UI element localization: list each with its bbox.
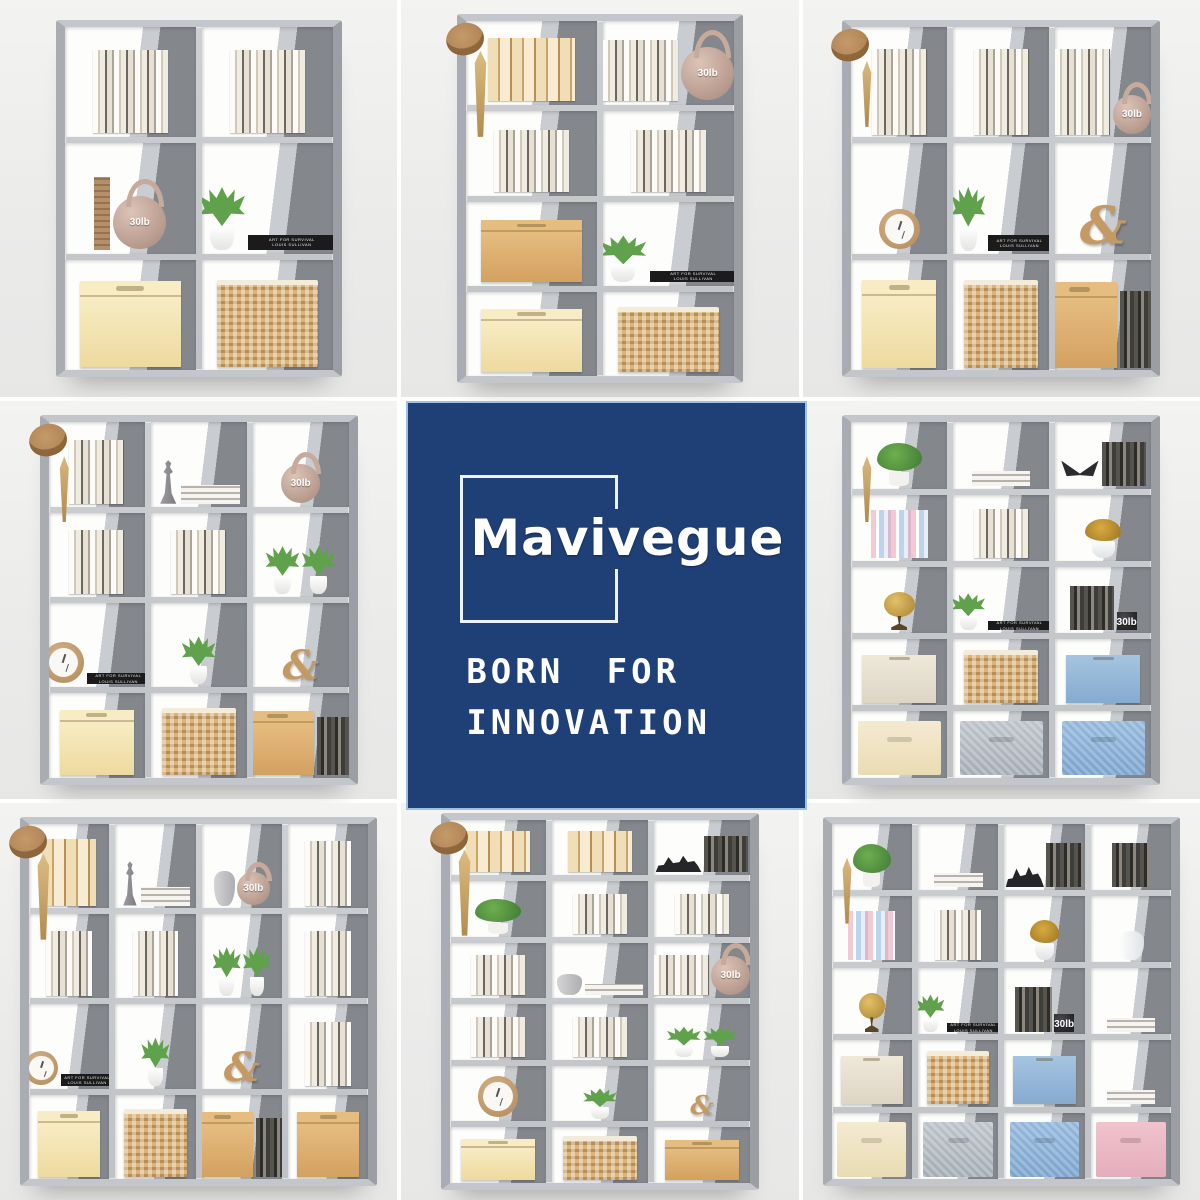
16-cube-organizer-photo: 30lbART FOR SURVIVALLOUIS SULLIVAN& <box>20 817 378 1187</box>
item-basket <box>563 1136 637 1180</box>
item-kettlebell: 30lb <box>711 956 750 995</box>
shelf-cube <box>953 639 1049 705</box>
shelf-cube: ART FOR SURVIVALLOUIS SULLIVAN <box>953 567 1049 633</box>
shelf-cube <box>552 1127 648 1183</box>
item-amp: & <box>283 648 319 684</box>
shelf-cube <box>115 1004 195 1088</box>
item-basket <box>927 1051 989 1105</box>
item-plant-leafy <box>875 443 924 486</box>
kettlebell-weight-label: 30lb <box>1122 109 1142 120</box>
15-cube-organizer-photo: ART FOR SURVIVALLOUIS SULLIVAN30lb <box>842 415 1160 785</box>
shelf-cube <box>918 1040 998 1106</box>
item-stack <box>1107 1090 1156 1105</box>
item-plant <box>953 187 985 251</box>
item-globe <box>879 592 920 630</box>
shelf-cube <box>832 968 912 1034</box>
item-stack <box>1107 1018 1156 1033</box>
shelf-cube <box>29 1095 109 1179</box>
shelf-cube: ART FOR SURVIVALLOUIS SULLIVAN <box>603 202 734 286</box>
item-plant <box>603 235 646 282</box>
item-books <box>471 1017 526 1057</box>
item-box-cream <box>461 1139 535 1180</box>
shelf-cube <box>953 27 1049 138</box>
kettlebell-weight-label: 30lb <box>1054 1019 1074 1030</box>
8-cube-organizer-photo: 30lbART FOR SURVIVALLOUIS SULLIVAN <box>457 14 743 384</box>
item-stack-black: ART FOR SURVIVALLOUIS SULLIVAN <box>650 271 734 282</box>
item-box-cream <box>862 280 936 367</box>
book-spine-text: LOUIS SULLIVAN <box>1000 243 1039 249</box>
item-dino <box>1006 866 1044 888</box>
brand-square: Mavivegue BORN FOR INNOVATION <box>406 401 806 809</box>
item-plant <box>266 546 300 594</box>
item-plant <box>243 947 271 996</box>
item-books-dark <box>256 1118 283 1176</box>
shelf-cube <box>466 111 597 195</box>
shelf-cube <box>654 1004 750 1060</box>
shelf-cube: & <box>1055 143 1151 254</box>
item-basket <box>618 307 719 372</box>
shelf-cube <box>288 1095 368 1179</box>
6-cube-organizer-photo: 30lbART FOR SURVIVALLOUIS SULLIVAN <box>56 20 342 378</box>
item-books-dark <box>1120 291 1152 368</box>
item-plant <box>703 1027 737 1057</box>
shelf-cube <box>1004 1113 1084 1179</box>
item-box-cream <box>38 1111 100 1177</box>
item-basket <box>124 1109 186 1177</box>
item-books <box>631 130 706 192</box>
shelf-cube <box>832 1113 912 1179</box>
item-books <box>654 955 709 995</box>
item-amp: & <box>690 1095 713 1118</box>
item-books-dark <box>1070 586 1114 630</box>
item-plant <box>583 1088 617 1118</box>
book-spine-text: LOUIS SULLIVAN <box>954 1028 993 1033</box>
shelf-cube <box>151 422 247 506</box>
shelf-cube <box>202 27 333 138</box>
shelf-cube <box>1055 422 1151 488</box>
shelf-cube <box>65 260 196 371</box>
item-books <box>974 49 1029 134</box>
item-clock <box>29 1051 58 1085</box>
item-box-tan <box>481 220 582 282</box>
9-cube-organizer-photo: 30lbART FOR SURVIVALLOUIS SULLIVAN& <box>842 20 1160 378</box>
shelf-cube <box>1091 968 1171 1034</box>
item-drawer-grey <box>960 721 1043 775</box>
item-stack-black: ART FOR SURVIVALLOUIS SULLIVAN <box>988 235 1050 251</box>
shelf-cube <box>654 881 750 937</box>
item-books <box>494 130 569 192</box>
item-basket <box>162 708 236 775</box>
item-stack-black: ART FOR SURVIVALLOUIS SULLIVAN <box>248 235 332 250</box>
shelf-cube: 30lb <box>603 21 734 105</box>
item-folders <box>42 839 95 905</box>
shelf-cube <box>953 711 1049 777</box>
item-kettlebell: 30lb <box>681 47 734 100</box>
item-dino <box>656 855 702 873</box>
item-drawer-pink <box>1096 1122 1166 1177</box>
item-kettlebell: 30lb <box>1113 95 1152 134</box>
shelf-cube <box>288 1004 368 1088</box>
item-bin-beige <box>841 1056 903 1105</box>
item-stack <box>141 887 190 906</box>
item-clock <box>478 1076 519 1117</box>
item-bin-blue <box>1013 1056 1075 1105</box>
shelf-cube <box>288 914 368 998</box>
item-flowers-yellow <box>1028 920 1062 960</box>
shelf-cube <box>202 260 333 371</box>
shelf-cube <box>151 513 247 597</box>
item-folders <box>568 831 632 872</box>
item-books <box>305 1022 351 1087</box>
item-plant <box>202 187 245 250</box>
photo-12-cube-organizer: 30lbART FOR SURVIVALLOUIS SULLIVAN& <box>0 401 397 798</box>
shelf-cube <box>65 27 196 138</box>
shelf-cube: ART FOR SURVIVALLOUIS SULLIVAN <box>953 143 1049 254</box>
shelf-cube: 30lb <box>1055 567 1151 633</box>
shelf-cube <box>1055 711 1151 777</box>
item-books <box>305 841 351 906</box>
kettlebell-weight-label: 30lb <box>1117 617 1137 628</box>
kettlebell-weight-label: 30lb <box>698 68 718 79</box>
item-stack <box>585 984 643 996</box>
shelf-cube <box>1091 896 1171 962</box>
item-butterfly <box>1060 461 1099 486</box>
item-globe <box>855 993 889 1032</box>
shelf-cube <box>851 260 947 371</box>
item-kettlebell: 30lb <box>237 872 270 905</box>
kettlebell-weight-label: 30lb <box>130 217 150 228</box>
item-drawer-cream <box>858 721 941 775</box>
item-books-pastel <box>871 510 928 558</box>
item-books <box>230 50 305 133</box>
item-stack <box>934 873 983 888</box>
shelf-cube <box>1004 824 1084 890</box>
item-plant <box>182 636 216 684</box>
item-drawer-blue <box>1010 1122 1080 1177</box>
item-folders <box>488 38 575 101</box>
shelf-cube <box>49 693 145 777</box>
item-bin-blue <box>1066 655 1140 703</box>
book-spine-text: LOUIS SULLIVAN <box>99 679 138 685</box>
shelf-cube <box>151 693 247 777</box>
shelf-cube <box>1091 1113 1171 1179</box>
shelf-cube <box>832 896 912 962</box>
shelf-cube: 30lb <box>202 824 282 908</box>
item-books-dark <box>1112 843 1149 888</box>
shelf-cube <box>953 422 1049 488</box>
shelf-cube <box>1055 639 1151 705</box>
tagline-line-1: BORN FOR <box>466 647 711 698</box>
shelf-cube <box>115 1095 195 1179</box>
item-plant <box>141 1037 169 1086</box>
item-vase <box>557 974 582 996</box>
item-folders <box>466 831 530 872</box>
shelf-cube <box>466 292 597 376</box>
item-plant-leafy <box>851 844 892 888</box>
book-spine-text: LOUIS SULLIVAN <box>272 242 311 248</box>
shelf-cube: ART FOR SURVIVALLOUIS SULLIVAN <box>49 603 145 687</box>
shelf-cube <box>288 824 368 908</box>
shelf-cube: ART FOR SURVIVALLOUIS SULLIVAN <box>202 143 333 254</box>
item-books <box>171 530 226 594</box>
item-plant <box>667 1027 701 1057</box>
item-amp: & <box>1080 204 1127 251</box>
item-stack <box>181 485 239 504</box>
shelf-cube <box>151 603 247 687</box>
item-books-pastel <box>848 911 895 960</box>
item-books <box>133 931 179 996</box>
shelf-cube <box>552 943 648 999</box>
shelf-cube <box>202 1095 282 1179</box>
item-box-tan <box>297 1112 359 1177</box>
item-books-dark <box>1046 843 1083 888</box>
item-books <box>305 931 351 996</box>
kettlebell-weight-label: 30lb <box>291 478 311 489</box>
item-stack <box>972 471 1030 485</box>
shelf-cube <box>552 1066 648 1122</box>
shelf-cube <box>253 693 349 777</box>
item-plant <box>918 994 945 1032</box>
item-books <box>675 894 730 934</box>
item-basket <box>964 650 1038 703</box>
item-chess <box>121 861 139 905</box>
shelf-cube <box>654 1127 750 1183</box>
item-bin-beige <box>862 655 936 703</box>
shelf-cube <box>49 513 145 597</box>
shelf-cube <box>1004 896 1084 962</box>
shelf-cube <box>1055 260 1151 371</box>
shelf-cube: 30lb <box>1004 968 1084 1034</box>
item-plant <box>302 546 336 594</box>
shelf-cube <box>552 881 648 937</box>
photo-16-cube-organizer: 30lbART FOR SURVIVALLOUIS SULLIVAN& <box>0 803 397 1200</box>
shelf-cube <box>851 567 947 633</box>
shelf-cube <box>654 820 750 876</box>
tagline-line-2: INNOVATION <box>466 698 711 749</box>
book-spine-text: LOUIS SULLIVAN <box>1000 626 1039 630</box>
item-books <box>872 49 927 134</box>
item-books <box>974 509 1029 558</box>
shelf-cube <box>450 1127 546 1183</box>
shelf-cube <box>953 260 1049 371</box>
shelf-cube <box>253 513 349 597</box>
shelf-cube <box>851 143 947 254</box>
item-drawer-blue <box>1062 721 1145 775</box>
item-box-tan <box>665 1140 739 1180</box>
shelf-cube <box>450 943 546 999</box>
shelf-cube <box>918 824 998 890</box>
photo-9-cube-organizer: 30lbART FOR SURVIVALLOUIS SULLIVAN& <box>803 0 1200 397</box>
shelf-cube: ART FOR SURVIVALLOUIS SULLIVAN <box>29 1004 109 1088</box>
item-chess <box>158 460 179 503</box>
item-drawer-grey <box>923 1122 993 1177</box>
shelf-cube: ART FOR SURVIVALLOUIS SULLIVAN <box>918 968 998 1034</box>
item-clock <box>879 209 920 250</box>
item-basket <box>217 280 318 366</box>
shelf-cube <box>466 202 597 286</box>
item-books <box>69 530 124 594</box>
shelf-cube: 30lb <box>65 143 196 254</box>
item-kettlebell: 30lb <box>113 196 166 249</box>
shelf-cube: 30lb <box>253 422 349 506</box>
item-box-tan <box>1055 282 1117 367</box>
shelf-cube <box>1004 1040 1084 1106</box>
brand-wordmark: Mavivegue <box>466 509 792 569</box>
shelf-cube <box>603 292 734 376</box>
shelf-cube <box>552 1004 648 1060</box>
shelf-cube <box>450 1066 546 1122</box>
shelf-cube <box>851 711 947 777</box>
shelf-cube <box>851 639 947 705</box>
shelf-cube <box>832 1040 912 1106</box>
item-plant <box>953 593 985 630</box>
kettlebell-weight-label: 30lb <box>721 970 741 981</box>
item-board <box>94 177 110 250</box>
item-amp: & <box>224 1050 260 1086</box>
photo-6-cube-organizer: 30lbART FOR SURVIVALLOUIS SULLIVAN <box>0 0 397 397</box>
book-spine-text: LOUIS SULLIVAN <box>68 1080 107 1086</box>
shelf-cube <box>953 495 1049 561</box>
photo-18-cube-organizer: 30lb& <box>401 803 798 1200</box>
item-stack-black: ART FOR SURVIVALLOUIS SULLIVAN <box>87 673 145 685</box>
shelf-cube: & <box>202 1004 282 1088</box>
shelf-cube <box>1091 824 1171 890</box>
item-box-cream <box>80 281 181 366</box>
item-plant-leafy <box>473 899 522 934</box>
product-collage: 30lbART FOR SURVIVALLOUIS SULLIVAN 30lbA… <box>0 0 1200 1200</box>
item-plant <box>213 947 241 996</box>
photo-20-cube-organizer: ART FOR SURVIVALLOUIS SULLIVAN30lb <box>803 803 1200 1200</box>
shelf-cube <box>1091 1040 1171 1106</box>
shelf-cube <box>115 914 195 998</box>
item-books <box>46 931 92 996</box>
shelf-cube <box>603 111 734 195</box>
item-vase <box>214 871 235 906</box>
20-cube-organizer-photo: ART FOR SURVIVALLOUIS SULLIVAN30lb <box>823 817 1181 1187</box>
item-drawer-cream <box>837 1122 907 1177</box>
photo-8-cube-organizer: 30lbART FOR SURVIVALLOUIS SULLIVAN <box>401 0 798 397</box>
item-books <box>1055 49 1110 134</box>
item-stack-black: ART FOR SURVIVALLOUIS SULLIVAN <box>947 1023 999 1032</box>
shelf-cube: & <box>654 1066 750 1122</box>
shelf-cube: & <box>253 603 349 687</box>
item-books-dark <box>1102 442 1146 486</box>
item-books <box>573 894 628 934</box>
item-books <box>935 910 981 960</box>
item-books-dark <box>317 717 349 774</box>
photo-15-cube-organizer: ART FOR SURVIVALLOUIS SULLIVAN30lb <box>803 401 1200 798</box>
item-books <box>69 440 124 504</box>
item-stack-black: ART FOR SURVIVALLOUIS SULLIVAN <box>988 621 1050 630</box>
item-books <box>573 1017 628 1057</box>
shelf-cube: 30lb <box>654 943 750 999</box>
item-kettlebell-dark: 30lb <box>1117 612 1137 630</box>
shelf-cube: 30lb <box>1055 27 1151 138</box>
shelf-cube <box>918 896 998 962</box>
item-books <box>603 40 678 102</box>
item-kettlebell-dark: 30lb <box>1054 1014 1074 1032</box>
item-vase-white <box>1118 931 1143 960</box>
item-clock <box>49 642 84 683</box>
item-books-dark <box>704 836 748 872</box>
shelf-cube <box>115 824 195 908</box>
shelf-cube <box>918 1113 998 1179</box>
shelf-cube <box>1055 495 1151 561</box>
book-spine-text: LOUIS SULLIVAN <box>674 276 713 282</box>
shelf-cube <box>202 914 282 998</box>
brand-tile: Mavivegue BORN FOR INNOVATION <box>401 401 798 798</box>
item-stack-black: ART FOR SURVIVALLOUIS SULLIVAN <box>61 1074 110 1086</box>
kettlebell-weight-label: 30lb <box>243 883 263 894</box>
shelf-cube <box>450 1004 546 1060</box>
item-books <box>93 50 168 133</box>
item-box-cream <box>481 309 582 372</box>
18-cube-organizer-photo: 30lb& <box>441 813 759 1190</box>
item-basket <box>964 280 1038 368</box>
item-books <box>471 955 526 995</box>
item-box-tan <box>253 711 315 775</box>
item-box-cream <box>60 710 134 775</box>
item-box-tan <box>202 1112 254 1177</box>
brand-tagline: BORN FOR INNOVATION <box>466 647 711 749</box>
item-books-dark <box>1015 987 1052 1032</box>
item-kettlebell: 30lb <box>281 464 320 503</box>
item-flowers-yellow <box>1083 519 1124 558</box>
shelf-cube <box>552 820 648 876</box>
12-cube-organizer-photo: 30lbART FOR SURVIVALLOUIS SULLIVAN& <box>40 415 358 785</box>
